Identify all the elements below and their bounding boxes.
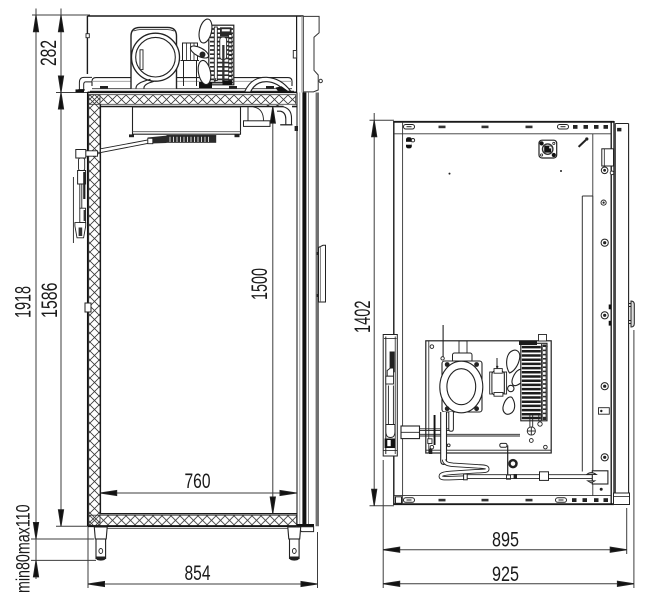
svg-text:1586: 1586: [37, 283, 62, 319]
svg-text:282: 282: [36, 40, 61, 66]
svg-text:1402: 1402: [350, 301, 375, 334]
svg-text:854: 854: [185, 561, 211, 585]
svg-text:min80max110: min80max110: [13, 504, 35, 593]
svg-text:895: 895: [492, 528, 519, 552]
svg-text:1918: 1918: [11, 286, 36, 318]
svg-text:1500: 1500: [247, 268, 272, 300]
svg-text:760: 760: [185, 469, 211, 493]
svg-text:925: 925: [492, 562, 519, 586]
